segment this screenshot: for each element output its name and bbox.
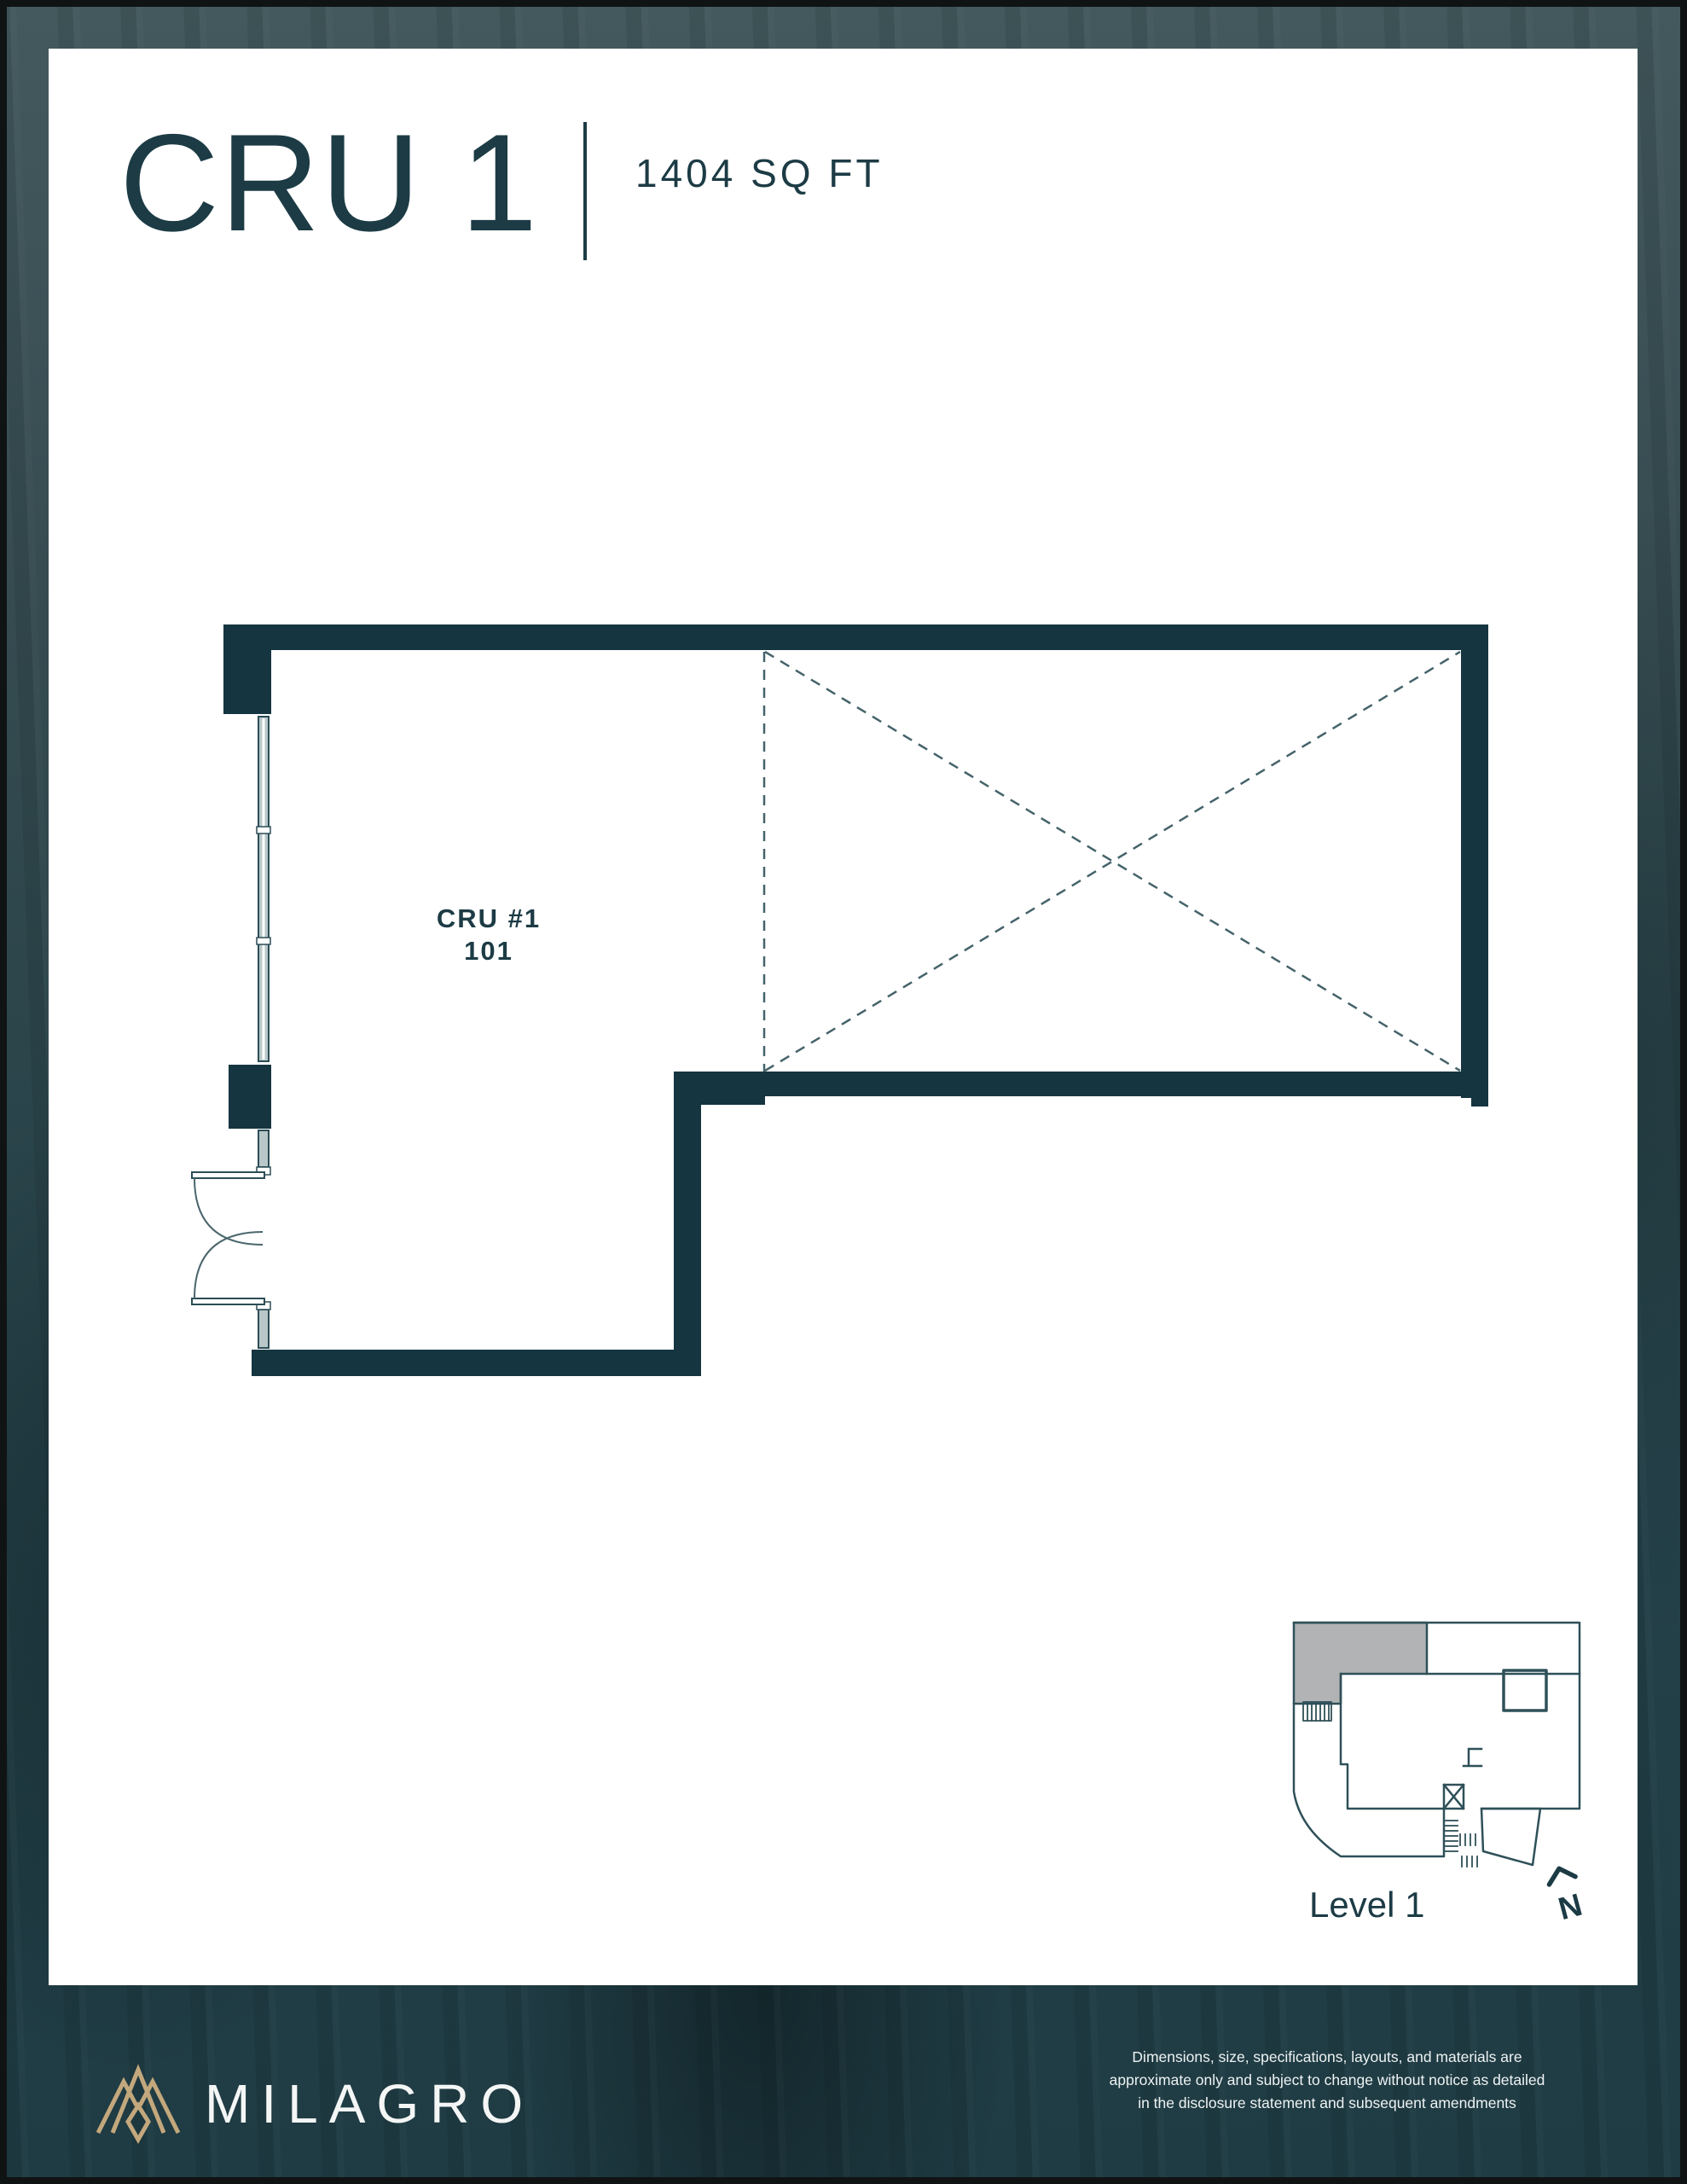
disclaimer-line: in the disclosure statement and subseque… — [1046, 2092, 1609, 2115]
wall-top — [223, 624, 1488, 650]
wall-bottom — [252, 1350, 701, 1376]
milagro-logo-mark — [96, 2063, 181, 2145]
level-map-highlight — [1294, 1623, 1427, 1704]
floor-plan — [192, 624, 1488, 1376]
north-arrow-icon: N — [1546, 1865, 1587, 1927]
dashed-exclusion-area — [764, 652, 1460, 1072]
window-wall — [257, 717, 270, 1348]
map-stairs-bottom — [1446, 1821, 1477, 1867]
map-elevator — [1444, 1785, 1464, 1809]
unit-number: 101 — [369, 935, 608, 967]
disclaimer: Dimensions, size, specifications, layout… — [1046, 2046, 1609, 2115]
double-door — [192, 1167, 270, 1310]
map-stairs-top — [1303, 1702, 1331, 1721]
window-joint — [257, 827, 270, 834]
wall-right-foot — [1471, 1098, 1488, 1107]
door-leaf-top — [192, 1172, 264, 1178]
level-label: Level 1 — [1309, 1885, 1424, 1925]
flyer-canvas: CRU 1 1404 SQ FT — [0, 0, 1687, 2184]
wall-mid-horizontal — [674, 1072, 1488, 1096]
pillar-top-left — [223, 624, 271, 714]
unit-name: CRU #1 — [369, 903, 608, 935]
brand-name: MILAGRO — [205, 2063, 534, 2145]
wall-interior-vertical — [674, 1072, 701, 1376]
door-leaf-bottom — [192, 1298, 264, 1304]
door-swing-bottom — [194, 1232, 263, 1298]
level-map — [1294, 1623, 1580, 1867]
brand-row: MILAGRO — [96, 2063, 534, 2145]
floor-plan-graphics: N — [0, 0, 1687, 2184]
pillar-mid-left — [229, 1065, 271, 1129]
door-swing-top — [194, 1178, 263, 1245]
unit-label: CRU #1 101 — [369, 903, 608, 967]
north-label: N — [1555, 1887, 1586, 1927]
window-joint — [257, 938, 270, 944]
wall-right — [1461, 624, 1488, 1098]
disclaimer-line: approximate only and subject to change w… — [1046, 2069, 1609, 2092]
disclaimer-line: Dimensions, size, specifications, layout… — [1046, 2046, 1609, 2069]
